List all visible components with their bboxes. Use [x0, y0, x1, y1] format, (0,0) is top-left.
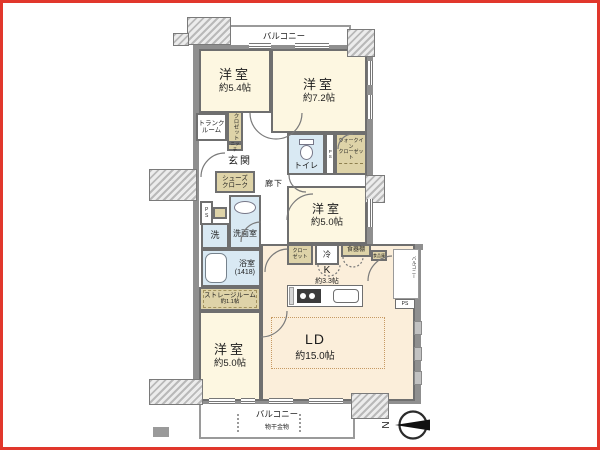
compass-icon: N — [381, 412, 430, 439]
plan-annotations: N — [3, 3, 600, 450]
swing-dash-fridge — [318, 265, 340, 276]
door-arc-toilet — [289, 175, 306, 192]
door-arc-washroom — [241, 222, 261, 242]
door-arc-entrance — [201, 153, 225, 177]
door-arc-wic — [338, 134, 353, 149]
compass-n-label: N — [381, 421, 392, 428]
door-arc-bed72 — [276, 113, 302, 139]
door-arc-ld — [265, 249, 288, 272]
door-arc-bed54 — [250, 113, 276, 139]
door-arc-bed50mid — [287, 194, 313, 220]
swing-dash-cupboard — [343, 257, 363, 267]
floorplan-canvas: バルコニー バルコニー 物干金物 洋室 約5.4帖 洋室 約7.2帖 トランク … — [0, 0, 600, 450]
door-arc-bed50low — [261, 311, 287, 337]
door-arc-service-balcony — [368, 256, 392, 281]
